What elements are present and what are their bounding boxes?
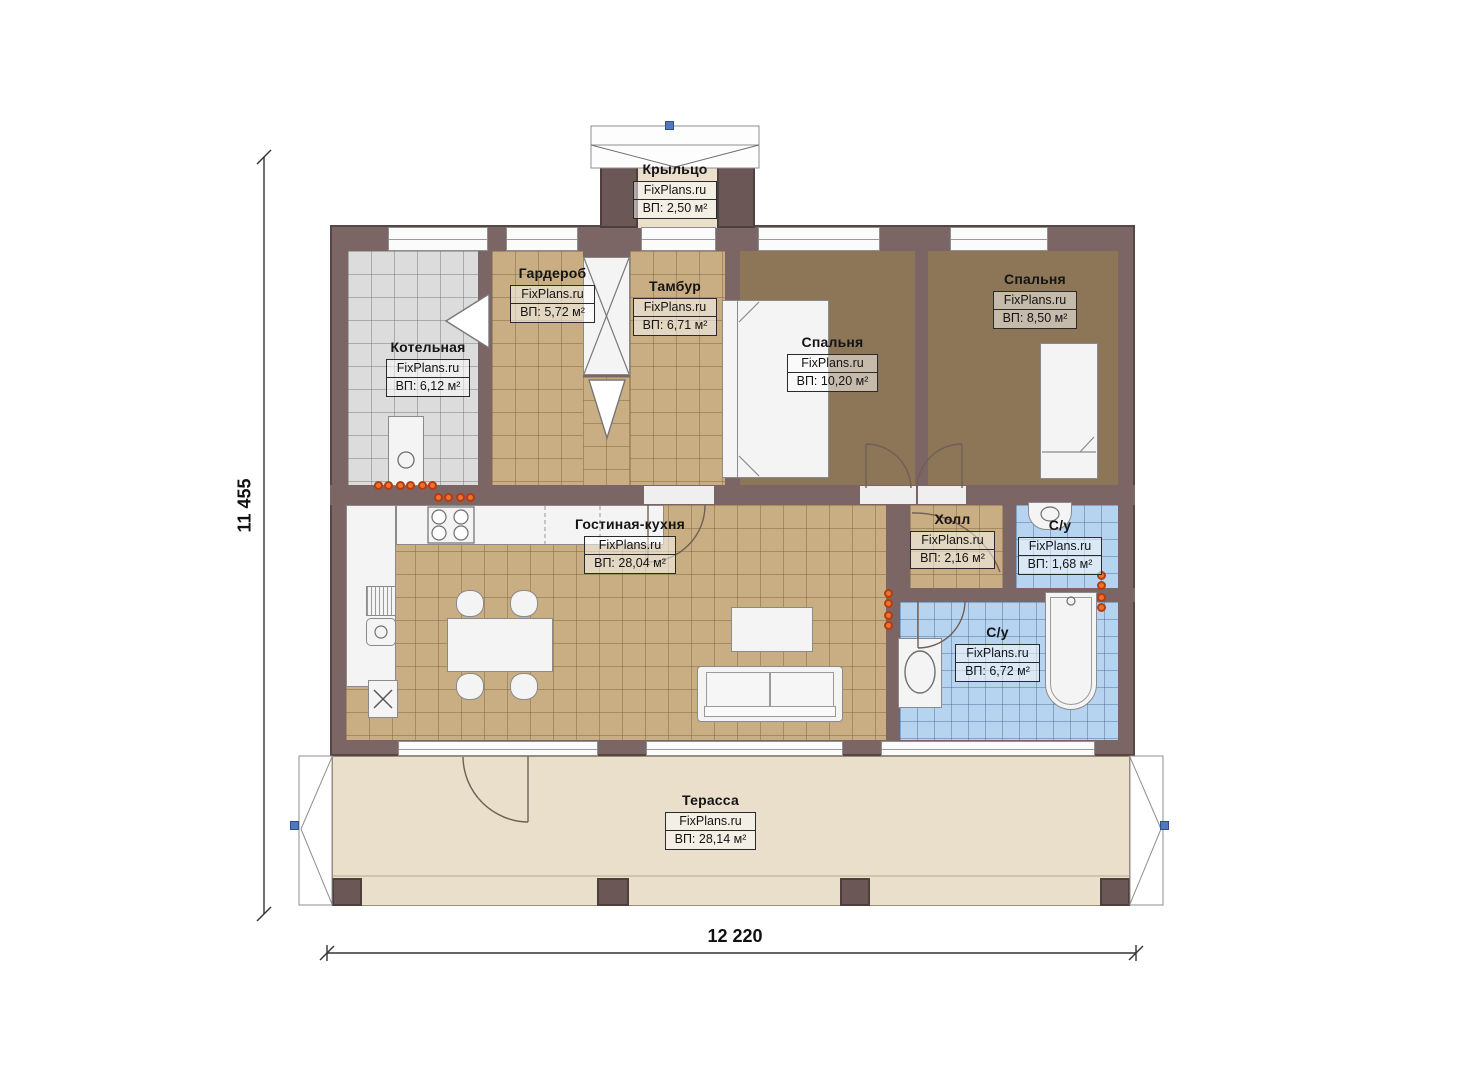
sofa [697,666,843,722]
door-opening [644,486,714,504]
room-area: ВП: 10,20 м² [788,373,878,391]
room-name: Гостиная-кухня [550,516,710,534]
outlet-icon [396,481,415,490]
room-name: Крыльцо [595,161,755,179]
window [388,227,488,251]
dimension-height-label: 11 455 [235,461,256,551]
brand-watermark: FixPlans.ru [788,355,878,374]
room-name: С/у [930,624,1065,642]
room-name: Терасса [633,792,788,810]
kitchen-drainer [366,586,396,616]
kitchen-sink [366,618,396,646]
door-opening [860,486,916,504]
terrace-pillar [332,878,362,906]
grip-handle-icon [290,821,299,830]
outlet-icon [456,493,475,502]
room-name: Холл [895,511,1010,529]
room-label-bathroom-small: С/у FixPlans.ru ВП: 1,68 м² [1005,517,1115,575]
dining-table [447,618,553,672]
brand-watermark: FixPlans.ru [994,292,1077,311]
room-area: ВП: 1,68 м² [1019,556,1102,574]
room-area: ВП: 6,72 м² [956,663,1039,681]
room-label-vestibule: Тамбур FixPlans.ru ВП: 6,71 м² [605,278,745,336]
room-name: Гардероб [485,265,620,283]
room-name: Тамбур [605,278,745,296]
chair [510,590,538,617]
door-opening [918,486,966,504]
room-label-bedroom-second: Спальня FixPlans.ru ВП: 8,50 м² [960,271,1110,329]
room-name: С/у [1005,517,1115,535]
fridge [368,680,398,718]
outlet-icon [1097,593,1106,612]
sofa-cushion [770,672,834,710]
room-label-living-kitchen: Гостиная-кухня FixPlans.ru ВП: 28,04 м² [550,516,710,574]
brand-watermark: FixPlans.ru [634,182,717,201]
room-area: ВП: 28,04 м² [585,555,675,573]
brand-watermark: FixPlans.ru [666,813,756,832]
entry-door-opening [641,227,716,251]
brand-watermark: FixPlans.ru [911,532,994,551]
floor-plan: 11 455 12 220 [0,0,1474,1080]
wardrobe-floor-lower [583,377,630,488]
window [398,741,598,756]
room-area: ВП: 6,12 м² [387,378,470,396]
room-label-boiler-room: Котельная FixPlans.ru ВП: 6,12 м² [353,339,503,397]
window [950,227,1048,251]
room-label-bathroom-large: С/у FixPlans.ru ВП: 6,72 м² [930,624,1065,682]
room-name: Котельная [353,339,503,357]
chair [456,673,484,700]
brand-watermark: FixPlans.ru [634,299,717,318]
room-label-terrace: Терасса FixPlans.ru ВП: 28,14 м² [633,792,788,850]
dimension-width-label: 12 220 [687,926,783,947]
room-name: Спальня [750,334,915,352]
single-bed [1040,343,1098,479]
room-area: ВП: 8,50 м² [994,310,1077,328]
sofa-cushion [706,672,770,710]
chair [456,590,484,617]
room-area: ВП: 2,16 м² [911,550,994,568]
wall-segment [915,251,928,488]
grip-handle-icon [1160,821,1169,830]
brand-watermark: FixPlans.ru [956,645,1039,664]
brand-watermark: FixPlans.ru [585,537,675,556]
terrace-pillar [1100,878,1130,906]
room-area: ВП: 28,14 м² [666,831,756,849]
grip-handle-icon [665,121,674,130]
room-label-bedroom-main: Спальня FixPlans.ru ВП: 10,20 м² [750,334,915,392]
brand-watermark: FixPlans.ru [511,286,594,305]
window [758,227,880,251]
room-area: ВП: 5,72 м² [511,304,594,322]
room-name: Спальня [960,271,1110,289]
chair [510,673,538,700]
room-area: ВП: 2,50 м² [634,200,717,218]
window [881,741,1095,756]
outlet-icon [884,611,893,630]
terrace-pillar [597,878,629,906]
brand-watermark: FixPlans.ru [387,360,470,379]
outlet-icon [374,481,393,490]
window [646,741,843,756]
brand-watermark: FixPlans.ru [1019,538,1102,557]
room-label-wardrobe: Гардероб FixPlans.ru ВП: 5,72 м² [485,265,620,323]
outlet-icon [884,589,893,608]
terrace-pillar [840,878,870,906]
coffee-table [731,607,813,652]
boiler-unit [388,416,424,486]
room-label-hall: Холл FixPlans.ru ВП: 2,16 м² [895,511,1010,569]
room-label-porch: Крыльцо FixPlans.ru ВП: 2,50 м² [595,161,755,219]
outlet-icon [434,493,453,502]
outlet-icon [418,481,437,490]
room-area: ВП: 6,71 м² [634,317,717,335]
window [506,227,578,251]
sofa-back [704,706,836,717]
